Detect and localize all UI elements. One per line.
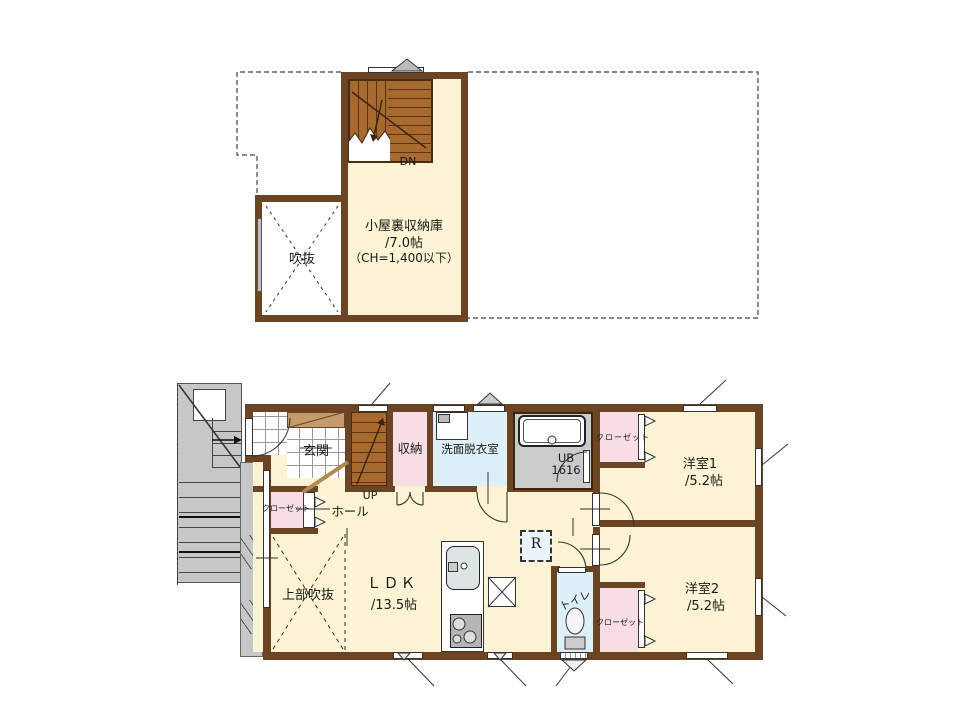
attic-dashed-outline bbox=[237, 72, 758, 318]
bath-size-label: 1616 bbox=[536, 463, 596, 477]
toilet-door-arc bbox=[558, 542, 586, 570]
prep-counter-cross bbox=[488, 577, 516, 607]
hall-closet-label: クローゼット bbox=[262, 503, 304, 514]
ldk-name-label: ＬＤＫ bbox=[356, 572, 428, 593]
attic-stair-detail bbox=[349, 59, 426, 161]
void-above-label: 上部吹抜 bbox=[272, 584, 344, 603]
bedroom2-size-label: /5.2帖 bbox=[664, 595, 748, 614]
washroom-door-arc bbox=[477, 492, 507, 522]
toilet-fixture bbox=[565, 608, 585, 649]
storage-door-arc-left bbox=[397, 492, 410, 505]
attic-gable-vent-icon bbox=[392, 59, 422, 71]
bedroom2-closet-label: クローゼット bbox=[596, 617, 642, 628]
attic-room-note: （CH=1,400以下） bbox=[330, 249, 478, 266]
bathtub-drain bbox=[548, 436, 556, 444]
bedroom2-door-arc bbox=[600, 535, 630, 565]
refrigerator-label: R bbox=[520, 536, 552, 552]
attic-void-label: 吹抜 bbox=[258, 248, 346, 267]
storage-door-arc-right bbox=[410, 492, 423, 505]
entrance-step-edge bbox=[303, 462, 348, 492]
shoe-cabinet-diagonal bbox=[287, 412, 345, 428]
vent-flag-icons bbox=[398, 393, 586, 671]
linework-overlay bbox=[0, 0, 960, 720]
interior-stair-arrow bbox=[357, 418, 385, 484]
washroom-vent-icon bbox=[478, 393, 502, 404]
washroom-label: 洗面脱衣室 bbox=[433, 441, 507, 457]
storage-label: 収納 bbox=[392, 438, 428, 457]
exterior-stair-marks bbox=[179, 385, 242, 467]
bedroom1-closet-label: クローゼット bbox=[596, 432, 642, 443]
entrance-label: 玄関 bbox=[288, 440, 344, 459]
bedroom1-size-label: /5.2帖 bbox=[662, 470, 746, 489]
ldk-size-label: /13.5帖 bbox=[356, 594, 432, 613]
floor-plan-canvas: DN 小屋裏収納庫 /7.0帖 （CH=1,400以下） 吹抜 玄関 UP 収納… bbox=[0, 0, 960, 720]
entry-door-arc bbox=[252, 418, 290, 456]
bedroom1-door-arc bbox=[600, 493, 634, 527]
attic-stairs-label: DN bbox=[388, 155, 428, 168]
hall-label: ホール bbox=[322, 501, 378, 520]
